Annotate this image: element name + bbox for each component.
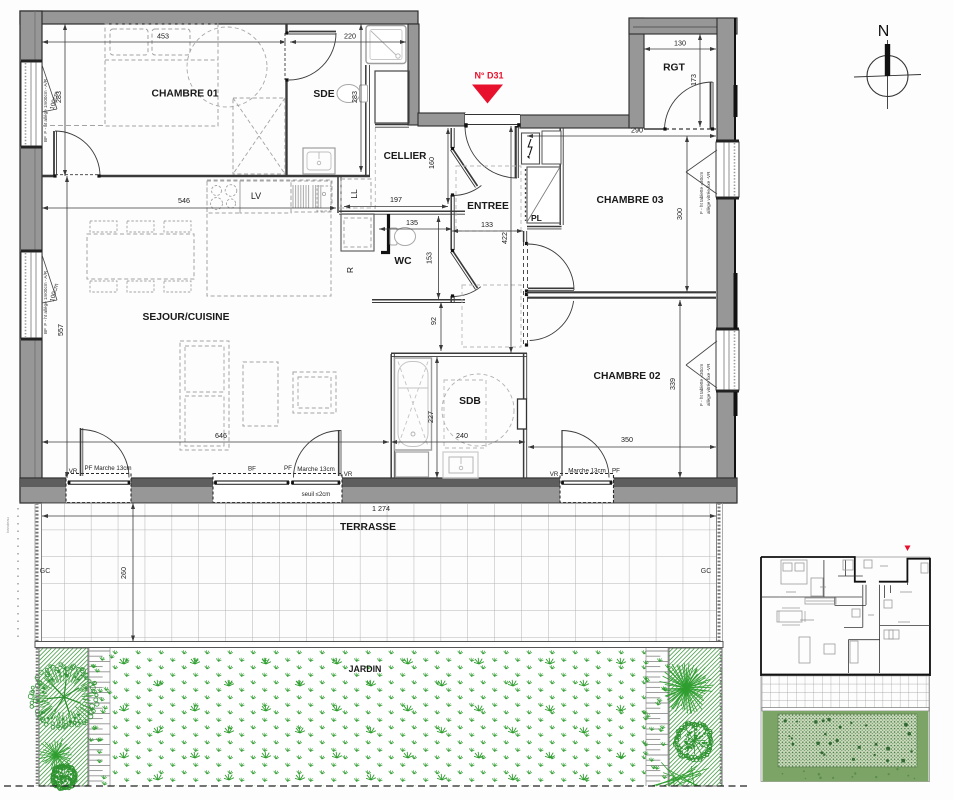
svg-text:283: 283 [350,91,359,103]
svg-text:283: 283 [54,91,63,103]
svg-text:130: 130 [674,39,686,48]
svg-text:160: 160 [427,157,436,169]
svg-text:PF: PF [284,465,292,472]
svg-text:F - ht tablette =30cm: F - ht tablette =30cm [699,364,704,406]
svg-text:N: N [878,23,890,40]
svg-text:F - ht tablette =30cm: F - ht tablette =30cm [699,172,704,214]
svg-text:227: 227 [426,411,435,423]
svg-text:153: 153 [425,252,434,264]
svg-text:260: 260 [119,567,128,579]
svg-text:allège vitrée fixe -VR: allège vitrée fixe -VR [706,171,711,214]
svg-text:422: 422 [500,232,509,244]
svg-text:1 274: 1 274 [372,504,390,513]
svg-text:PF: PF [612,468,620,475]
svg-text:VR: VR [69,468,78,475]
svg-text:CHAMBRE 01: CHAMBRE 01 [152,89,219,100]
svg-text:220: 220 [344,32,356,41]
svg-text:SDE: SDE [313,89,334,100]
svg-text:WC: WC [394,256,412,267]
svg-text:646: 646 [215,431,227,440]
svg-text:Marche 13cm: Marche 13cm [297,466,334,473]
svg-text:VR: VR [550,471,559,478]
svg-text:JARDIN: JARDIN [349,664,382,674]
svg-text:GC: GC [701,568,712,575]
svg-text:453: 453 [157,32,169,41]
svg-text:CHAMBRE 03: CHAMBRE 03 [597,195,664,206]
svg-text:SDB: SDB [459,396,481,407]
svg-text:546: 546 [178,196,190,205]
svg-text:350: 350 [621,435,633,444]
svg-text:GC: GC [40,568,51,575]
svg-text:seuil ≤2cm: seuil ≤2cm [302,492,331,498]
svg-text:300: 300 [675,208,684,220]
svg-text:92: 92 [429,317,438,325]
svg-text:BF F - ht allège 1m00cm - A/R: BF F - ht allège 1m00cm - A/R [43,270,48,334]
svg-text:BF F - ht allège 1m00cm - A/R: BF F - ht allège 1m00cm - A/R [43,78,48,142]
svg-text:LV: LV [251,191,261,201]
svg-text:PL: PL [531,213,542,223]
svg-text:bandeau: bandeau [5,517,10,533]
svg-text:Marche 13cm: Marche 13cm [568,468,605,475]
svg-text:TERRASSE: TERRASSE [340,522,396,533]
svg-text:133: 133 [481,220,493,229]
svg-text:197: 197 [390,195,402,204]
svg-text:PF Marche 13cm: PF Marche 13cm [84,465,131,472]
svg-text:339: 339 [668,378,677,390]
svg-text:allège vitrée fixe -VR: allège vitrée fixe -VR [706,363,711,406]
svg-text:LL: LL [349,189,359,199]
svg-text:R: R [345,267,355,273]
svg-text:N° D31: N° D31 [474,71,503,81]
svg-text:ENTREE: ENTREE [467,201,509,212]
svg-text:CELLIER: CELLIER [384,151,428,162]
svg-text:CHAMBRE 02: CHAMBRE 02 [594,371,661,382]
svg-text:135: 135 [406,218,418,227]
svg-text:240: 240 [456,431,468,440]
svg-text:VR: VR [344,471,353,478]
svg-text:557: 557 [56,324,65,336]
svg-text:173: 173 [689,74,698,86]
svg-text:SEJOUR/CUISINE: SEJOUR/CUISINE [143,312,230,323]
svg-text:RGT: RGT [663,63,685,74]
svg-text:290: 290 [631,126,643,135]
svg-text:BF: BF [248,466,256,473]
